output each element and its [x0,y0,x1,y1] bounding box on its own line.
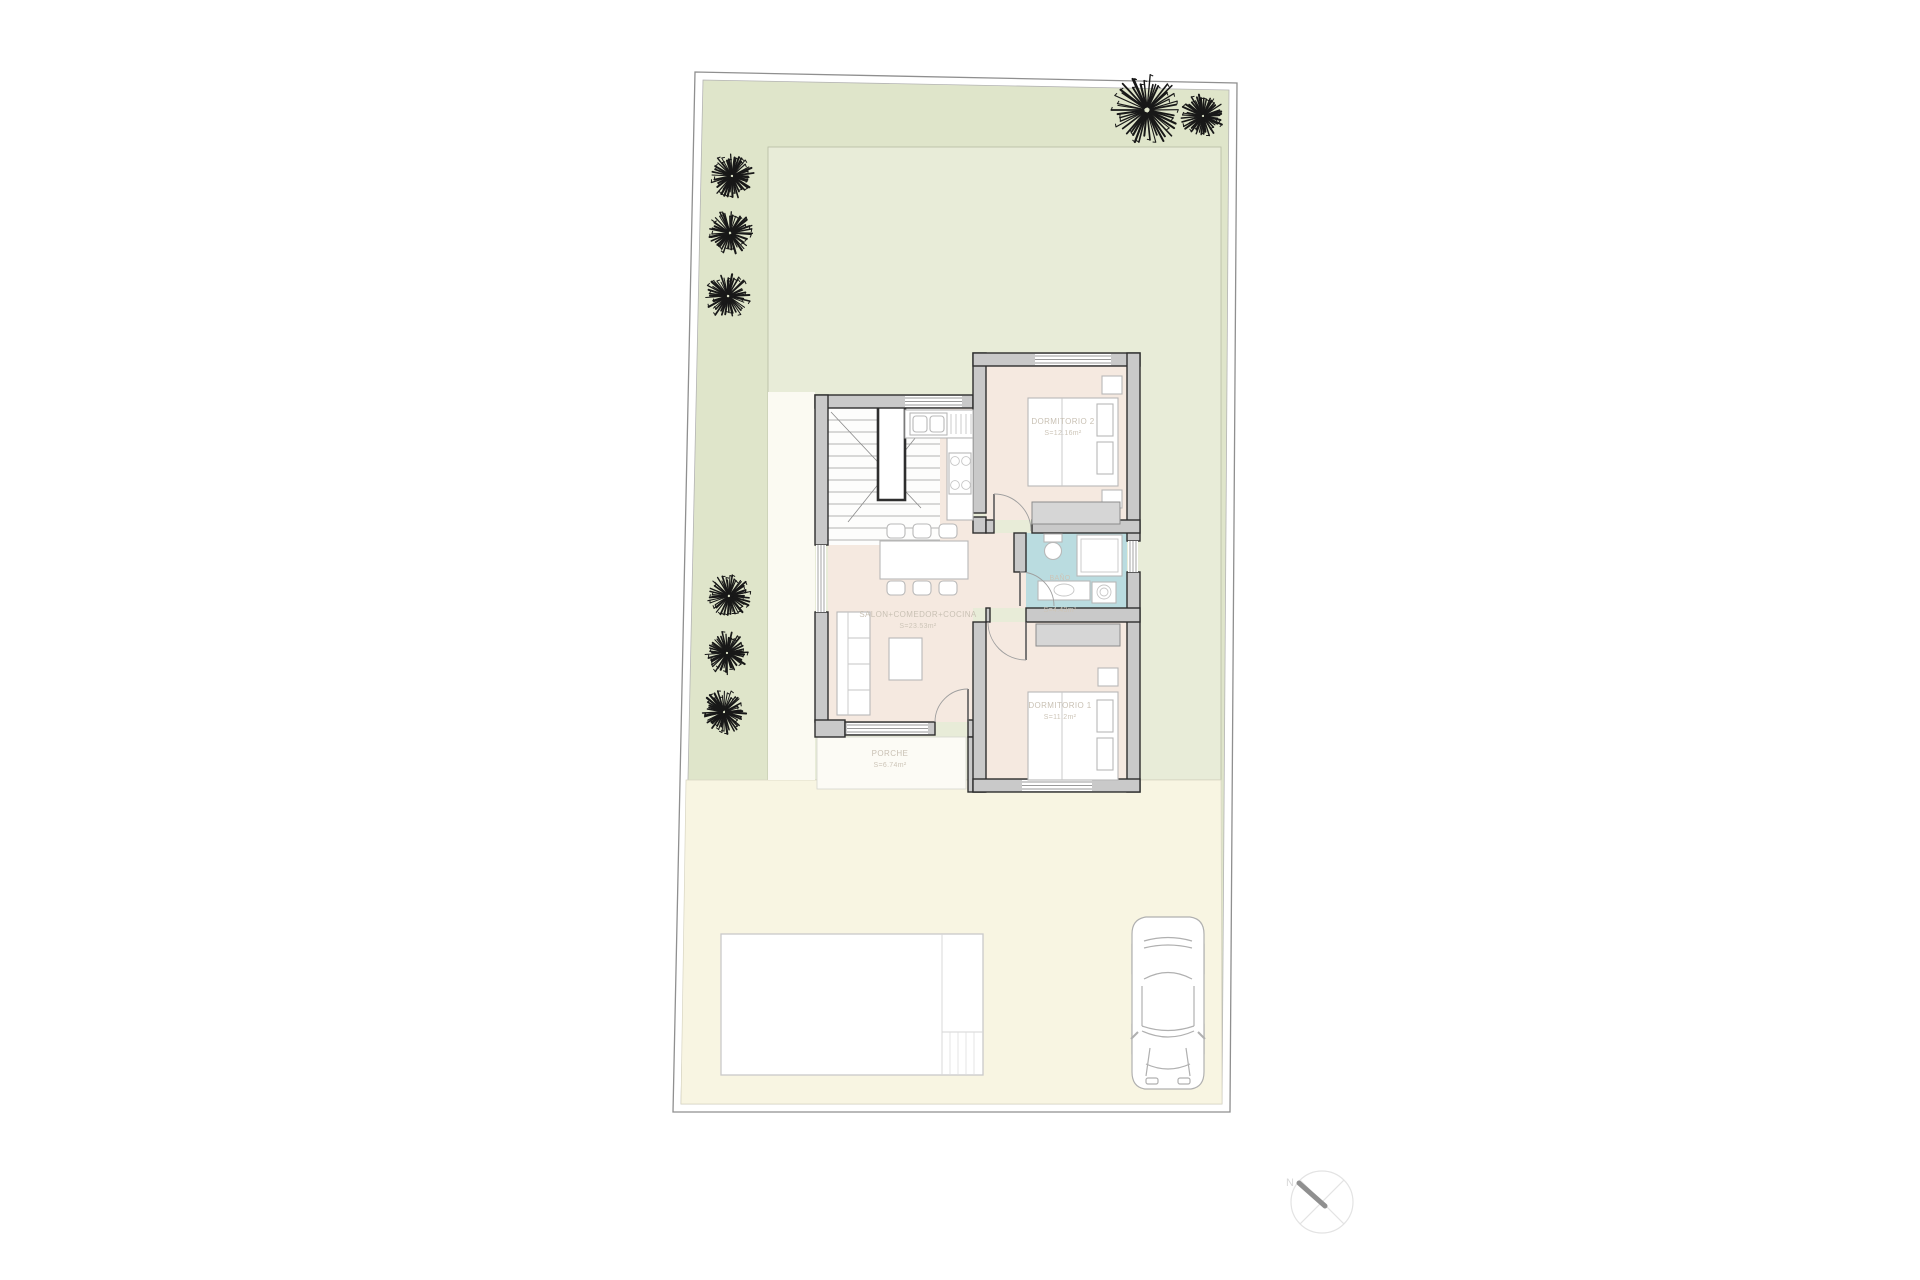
room-label-bano: BAÑO [1049,573,1070,582]
room-label-dormitorio2: DORMITORIO 2 [1031,417,1094,426]
dining-table [880,541,968,579]
kitchen-window [905,396,962,407]
toilet-bowl [1045,543,1062,560]
room-area-dormitorio2: S=12.16m² [1044,430,1082,437]
stair-rail [878,408,905,500]
side-walkway [768,392,815,780]
bathroom-window [1128,541,1138,572]
pillow [1097,442,1113,474]
coffee-table [889,638,922,680]
pillow [1097,738,1113,770]
chair [939,581,957,595]
room-label-dormitorio1: DORMITORIO 1 [1028,701,1091,710]
car [1131,917,1205,1089]
pool [721,934,983,1075]
bedroom2-window [1035,354,1111,365]
stove [949,453,971,494]
pillow [1097,404,1113,436]
living-bottom-window [847,723,928,734]
room-area-porche: S=6.74m² [874,762,907,769]
room-area-dormitorio1: S=11.2m² [1044,714,1077,721]
toilet-tank [1044,534,1062,542]
room-label-salon: SALON+COMEDOR+COCINA [859,610,977,619]
chair [913,524,931,538]
north-needle-icon [1299,1183,1325,1206]
site-plan-canvas: DORMITORIO 2 S=12.16m² SALON+COMEDOR+COC… [0,0,1920,1280]
bedroom2-furniture [1028,376,1122,524]
dining-set [880,524,968,595]
room-label-porche: PORCHE [872,749,909,758]
chair [887,524,905,538]
chair [887,581,905,595]
room-area-salon: S=23.53m² [899,623,937,630]
house-floor-plan: DORMITORIO 2 S=12.16m² SALON+COMEDOR+COC… [815,353,1140,792]
chair [913,581,931,595]
living-side-window [816,545,826,612]
north-compass: N [1286,1171,1353,1233]
shower [1077,535,1122,576]
pillow [1097,700,1113,732]
wardrobe [1036,624,1120,646]
room-area-bano: S=4.43m² [1044,607,1077,614]
north-label: N [1286,1177,1294,1189]
wardrobe [1032,502,1120,524]
nightstand [1098,668,1118,686]
sofa [837,612,870,715]
chair [939,524,957,538]
bedroom1-window [1022,780,1092,791]
nightstand [1102,376,1122,394]
